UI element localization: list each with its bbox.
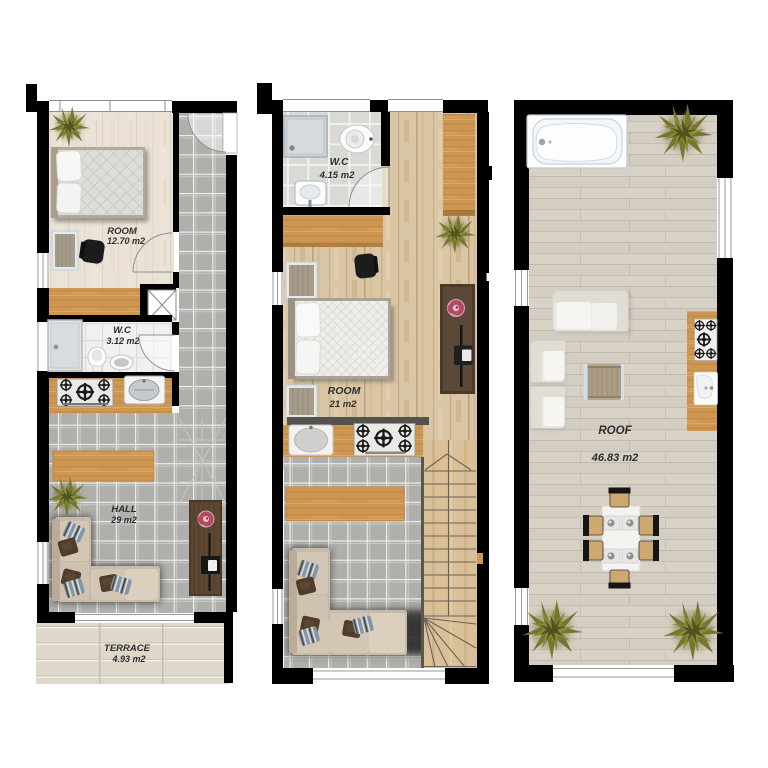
svg-text:ROOF: ROOF [598, 425, 632, 437]
svg-text:3.12 m2: 3.12 m2 [106, 336, 139, 346]
svg-text:12.70 m2: 12.70 m2 [107, 236, 145, 246]
svg-text:TERRACE: TERRACE [104, 643, 151, 654]
svg-text:4.15 m2: 4.15 m2 [319, 170, 356, 181]
svg-text:4.93 m2: 4.93 m2 [111, 654, 145, 664]
svg-text:HALL: HALL [111, 504, 137, 515]
svg-text:W.C: W.C [113, 325, 131, 336]
svg-text:21 m2: 21 m2 [329, 399, 358, 410]
svg-text:46.83 m2: 46.83 m2 [591, 452, 638, 464]
svg-text:ROOM: ROOM [328, 385, 361, 397]
svg-text:W.C: W.C [330, 157, 349, 168]
svg-text:29 m2: 29 m2 [110, 515, 137, 525]
